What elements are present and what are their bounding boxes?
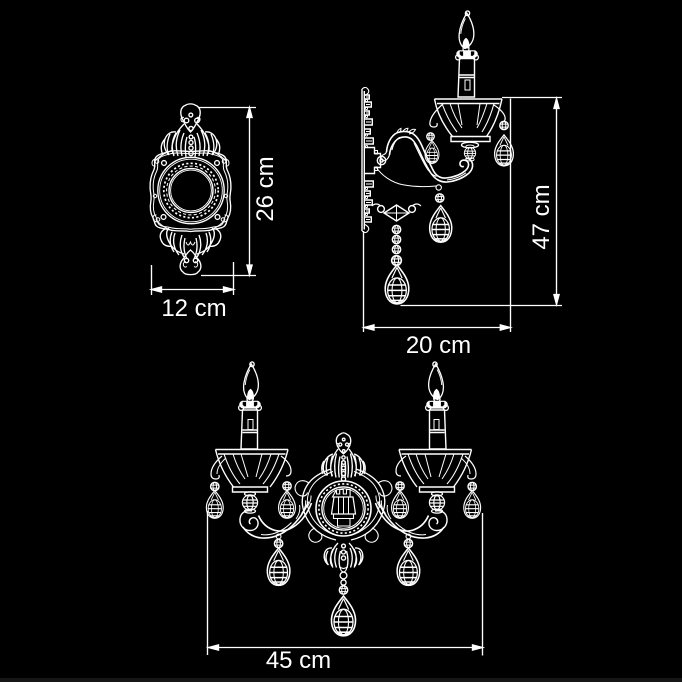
svg-text:45 cm: 45 cm (266, 647, 331, 674)
svg-text:26 cm: 26 cm (252, 156, 279, 221)
svg-text:47 cm: 47 cm (528, 184, 555, 249)
svg-text:20 cm: 20 cm (406, 332, 471, 359)
svg-text:12 cm: 12 cm (161, 295, 226, 322)
